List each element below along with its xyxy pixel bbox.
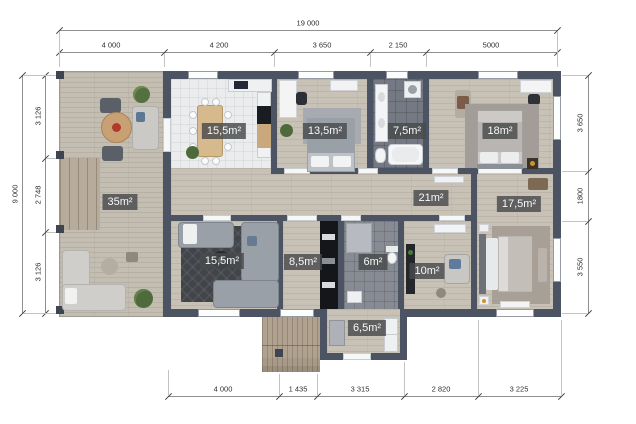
master-blanket [508,237,532,291]
room-label-bedroom3: 10m² [409,263,444,279]
door-bedroom3 [439,215,465,221]
dim-ext [370,53,371,67]
terrace-chair [100,98,121,113]
dim-ext [274,53,275,67]
entry-wardrobe-split [384,334,398,335]
master-nightstand [479,224,489,232]
master-nightstand-decor [482,299,486,303]
terrace-side-table [126,252,138,262]
bath-sink [378,92,385,102]
dim-ext [23,75,56,76]
room-label-entry: 6,5m² [348,320,386,336]
living-sofa-bottom [213,280,279,308]
dim-left-seg-0: 3 126 [34,107,43,126]
opening-kitchen [287,215,317,221]
bath-sink [378,118,385,128]
dim-bottom-seg-4: 3 225 [510,385,529,394]
terrace-chair [102,146,123,161]
window-master-bottom [496,309,534,317]
dining-chair [212,157,220,165]
bedroom2-pillow [501,152,519,163]
master-pillows [486,238,498,290]
master-dresser [528,178,548,190]
living-sofa-blanket [183,224,197,244]
dim-top-seg-3: 2 150 [389,41,408,50]
dim-bottom-seg-2: 3 315 [351,385,370,394]
window-bedroom1 [298,71,334,79]
dim-bottom-seg-line [168,396,561,397]
dim-ext [562,313,588,314]
dim-ext [279,374,280,396]
dining-chair [189,111,197,119]
window-master-right [553,238,561,282]
room-label-master: 17,5m² [497,196,541,212]
window-living-bottom [198,309,240,317]
bedroom2-headboard [477,164,523,169]
dim-bottom-seg-0: 4 000 [214,385,233,394]
door-living [203,215,231,221]
room-label-kitchen: 8,5m² [284,254,322,270]
oven-stack [257,106,271,124]
dim-ext [46,232,56,233]
dim-left-total-line [22,75,23,313]
living-sofa-right [241,222,279,282]
entry-front-door [343,353,371,360]
dim-right-seg-2: 3 550 [576,258,585,277]
dining-chair [224,143,232,151]
bedroom3-dresser [434,224,466,233]
kitchen-wood-unit [257,124,271,148]
window-dining [188,71,218,79]
room-label-dining: 15,5m² [202,123,246,139]
bathtub-inner [392,147,419,162]
kitchen-unit-front [322,258,335,264]
dining-chair [189,127,197,135]
toilet [375,148,386,163]
window-bathroom [386,71,408,79]
living-pillow [247,236,257,246]
floor-plan-canvas: 19 000 4 000 4 200 3 650 2 150 5000 9 00… [0,0,636,424]
window-bedroom2-top [478,71,518,79]
desk [279,80,297,118]
bedroom1-pillow [333,156,351,167]
room-label-hallway: 21m² [413,190,448,206]
master-headboard [479,234,486,294]
deck-post [275,349,283,357]
dresser [330,80,358,91]
dim-top-seg-line [59,52,557,53]
entry-wardrobe [384,318,398,352]
shower-zone [346,223,372,253]
wc-sink [347,291,362,303]
terrace-post [56,225,64,233]
bedroom3-pillow [449,259,461,269]
door-terrace [163,118,171,152]
bedroom2-side-decor [530,161,535,166]
dim-left-seg-1: 2 748 [34,186,43,205]
cooktop [234,81,248,89]
desk-chair [296,92,307,105]
terrace-post [56,71,64,79]
terrace-plant [134,289,153,308]
room-label-bedroom2: 18m² [482,123,517,139]
master-tv [500,301,530,308]
bedroom2-pillow [480,152,498,163]
dim-left-total-label: 9 000 [11,185,20,204]
dim-bottom-seg-1: 1 435 [289,385,308,394]
dining-chair [212,98,220,106]
dim-top-seg-4: 5000 [483,41,500,50]
terrace-steps [60,158,100,230]
hall-console [434,176,464,183]
bedroom2-desk [520,80,552,93]
dim-ext [164,53,165,67]
dim-ext [562,221,588,222]
door-wc [341,215,361,221]
terrace-coffee-table [101,258,118,275]
dim-right-seg-1: 1800 [576,188,585,205]
dim-ext [46,158,56,159]
bedroom1-plant [280,124,293,137]
dim-ext [59,31,60,67]
dim-right-seg-0: 3 650 [576,114,585,133]
dim-ext [562,75,588,76]
dim-right-seg-line [588,75,589,313]
dim-ext [561,320,562,396]
terrace-plant [133,86,150,103]
dim-left-seg-2: 3 126 [34,263,43,282]
door-bathroom [358,168,378,174]
dim-top-seg-0: 4 000 [102,41,121,50]
wall-int [471,168,477,317]
room-label-bathroom: 7,5m² [388,123,426,139]
bedroom3-pouf [436,288,446,298]
room-label-bedroom1: 13,5m² [303,123,347,139]
wall-int [398,215,404,317]
dim-ext [23,313,56,314]
dim-top-seg-1: 4 200 [210,41,229,50]
dim-ext [404,362,405,396]
dim-ext [426,53,427,67]
bedroom3-wardrobe-decor [408,250,413,255]
terrace-sofa-pillow [136,112,145,122]
dining-chair [201,98,209,106]
door-bedroom2 [432,168,458,174]
dim-top-total-label: 19 000 [297,19,320,28]
dining-chair [201,157,209,165]
deck-steps [262,345,320,372]
dim-ext [168,370,169,396]
dim-ext [557,31,558,67]
room-label-living: 15,5m² [200,253,244,269]
master-bench [538,248,547,282]
wall-int [367,71,373,174]
entry-cabinet [329,320,345,346]
window-deck-bottom [280,309,314,317]
wall-exterior-left [163,71,171,317]
bedroom1-pillow [311,156,329,167]
dim-bottom-seg-3: 2 820 [432,385,451,394]
room-label-terrace: 35m² [102,194,137,210]
room-label-wc: 6m² [359,254,388,270]
kitchen-unit-front [322,234,335,240]
dim-left-seg-line [45,75,46,313]
dining-plant [186,146,199,159]
terrace-post [56,151,64,159]
dim-top-seg-2: 3 650 [313,41,332,50]
dim-ext [562,171,588,172]
dining-chair [224,111,232,119]
wc-toilet-bowl [387,252,397,264]
window-bedroom2-right [553,96,561,140]
dim-ext [478,320,479,396]
wall-int [338,215,344,317]
dim-ext [317,374,318,396]
kitchen-unit-front [322,282,335,288]
washing-machine-drum [408,85,417,94]
terrace-table-decor [112,123,121,132]
terrace-throw [65,288,77,304]
dim-top-total-line [59,30,557,31]
